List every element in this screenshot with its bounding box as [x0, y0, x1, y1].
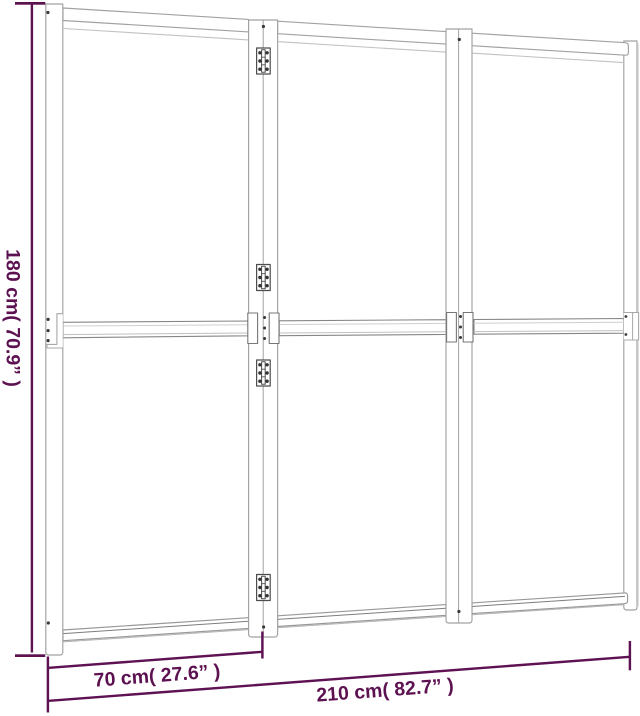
svg-text:180 cm( 70.9” ): 180 cm( 70.9” )	[2, 249, 24, 387]
